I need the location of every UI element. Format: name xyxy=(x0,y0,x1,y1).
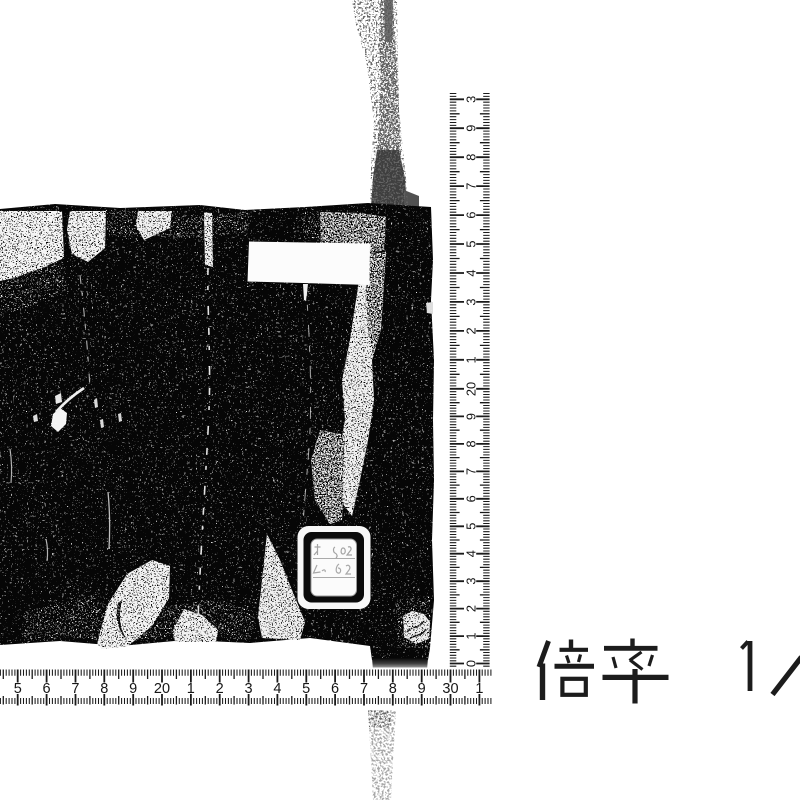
svg-text:4: 4 xyxy=(463,269,478,276)
svg-text:20: 20 xyxy=(463,382,478,396)
svg-text:30: 30 xyxy=(442,681,458,697)
svg-text:8: 8 xyxy=(463,154,478,161)
svg-text:9: 9 xyxy=(463,125,478,132)
svg-text:3: 3 xyxy=(463,96,478,103)
svg-text:5: 5 xyxy=(463,241,478,248)
svg-text:3: 3 xyxy=(463,298,478,305)
svg-text:3: 3 xyxy=(245,681,253,697)
svg-text:0: 0 xyxy=(463,660,478,667)
svg-text:3: 3 xyxy=(463,578,478,585)
svg-text:7: 7 xyxy=(463,468,478,475)
svg-text:8: 8 xyxy=(463,440,478,447)
svg-text:2: 2 xyxy=(463,605,478,612)
svg-text:4: 4 xyxy=(273,681,281,697)
svg-text:7: 7 xyxy=(360,681,368,697)
svg-text:1: 1 xyxy=(463,632,478,639)
svg-text:7: 7 xyxy=(71,681,79,697)
svg-text:6: 6 xyxy=(463,212,478,219)
svg-text:1: 1 xyxy=(463,356,478,363)
svg-text:1: 1 xyxy=(187,681,195,697)
svg-text:2: 2 xyxy=(463,327,478,334)
svg-text:6: 6 xyxy=(463,495,478,502)
svg-text:8: 8 xyxy=(389,681,397,697)
svg-text:9: 9 xyxy=(418,681,426,697)
svg-text:7: 7 xyxy=(463,183,478,190)
svg-text:2: 2 xyxy=(216,681,224,697)
svg-text:5: 5 xyxy=(463,523,478,530)
svg-text:5: 5 xyxy=(14,681,22,697)
svg-text:1: 1 xyxy=(475,681,483,697)
svg-text:4: 4 xyxy=(463,550,478,557)
svg-text:6: 6 xyxy=(331,681,339,697)
svg-text:8: 8 xyxy=(100,681,108,697)
svg-text:9: 9 xyxy=(129,681,137,697)
svg-text:6: 6 xyxy=(43,681,51,697)
svg-text:20: 20 xyxy=(154,681,170,697)
svg-text:9: 9 xyxy=(463,413,478,420)
svg-text:5: 5 xyxy=(302,681,310,697)
